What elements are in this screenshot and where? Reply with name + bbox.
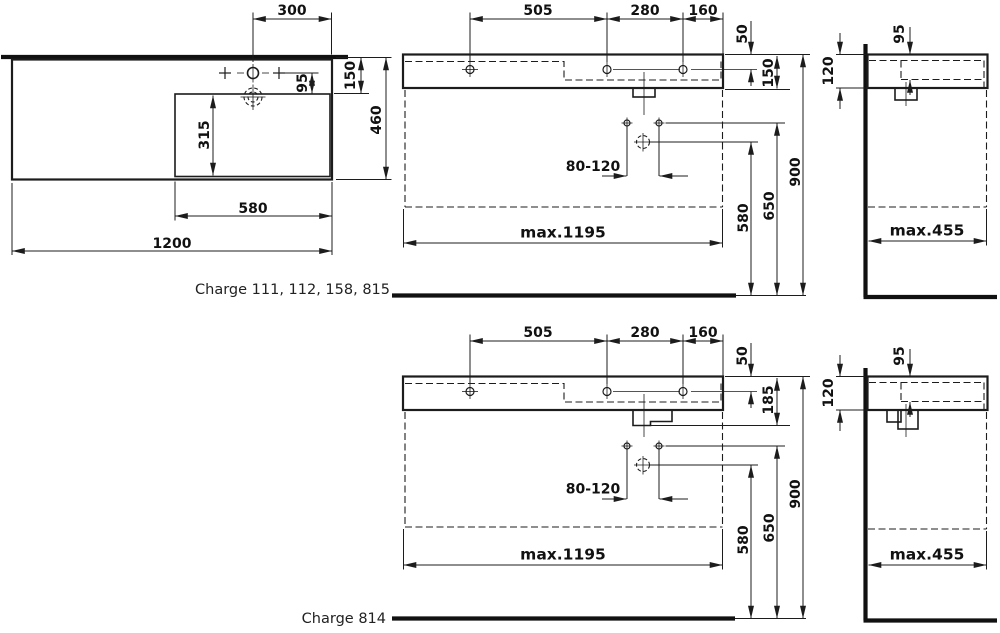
fixing-holes [622, 441, 665, 475]
dim-rim-height: 900 [788, 479, 804, 508]
dim-max-width: max.1195 [520, 546, 606, 564]
dim-body-height-side: 120 [821, 378, 837, 407]
basin-outline-plan [12, 60, 332, 180]
dim-rim-to-bowl: 150 [343, 61, 359, 90]
dim-fixing-height: 650 [762, 513, 778, 542]
side-elevation-top: 95 120 max.455 [821, 24, 997, 297]
dim-fixing-span: 80-120 [566, 159, 621, 175]
basin-outline-side [868, 377, 988, 411]
drawing-canvas: 300 150 95 460 315 580 1200 [0, 0, 1000, 633]
dim-rim-to-holes: 50 [735, 24, 751, 44]
caption-top: Charge 111, 112, 158, 815 [195, 282, 806, 298]
dim-bowl-inner-depth: 315 [197, 120, 213, 149]
dim-span-left: 505 [523, 325, 552, 341]
dim-fixing-span: 80-120 [566, 482, 621, 498]
dim-span-left: 505 [523, 3, 552, 19]
front-elevation-bottom: 505 280 160 50 185 80-120 580 650 900 ma… [403, 325, 810, 619]
dim-bowl-depth: 95 [892, 346, 908, 365]
dim-body-height-side: 120 [821, 56, 837, 85]
installation-envelope [405, 90, 723, 207]
dim-drain-height: 580 [736, 203, 752, 232]
dim-span-right: 160 [688, 325, 717, 341]
side-top-dimension-lines [836, 27, 987, 246]
drain-outlet-icon [634, 133, 653, 152]
dim-max-depth: max.455 [890, 222, 965, 240]
plan-view: 300 150 95 460 315 580 1200 [1, 3, 392, 255]
basin-outline-front [403, 377, 723, 411]
dim-faucet-offset: 300 [277, 3, 306, 19]
faucet-holes-front [462, 384, 757, 399]
bowl-hidden-line-side [869, 383, 984, 411]
faucet-holes-front [462, 62, 757, 77]
model-label-top: Charge 111, 112, 158, 815 [195, 282, 390, 298]
basin-outline-side [868, 55, 988, 89]
dim-total-width: 1200 [153, 236, 192, 252]
dim-body-height: 185 [761, 385, 777, 414]
bowl-hidden-line [405, 62, 721, 81]
model-label-bottom: Charge 814 [302, 611, 386, 627]
drain-outlet-icon [634, 456, 653, 475]
alt-faucet-position-right-icon [273, 67, 285, 79]
siphon-outline-icon [887, 410, 918, 429]
fixing-holes [622, 118, 665, 152]
dim-drain-height: 580 [736, 525, 752, 554]
side-elevation-bottom: 95 120 max.455 [821, 346, 997, 620]
technical-drawing-sheet: 300 150 95 460 315 580 1200 [0, 0, 1000, 633]
dim-max-width: max.1195 [520, 224, 606, 242]
dim-body-height: 150 [761, 58, 777, 87]
dim-fixing-height: 650 [762, 191, 778, 220]
dim-max-depth: max.455 [890, 546, 965, 564]
siphon-outline-icon [633, 410, 672, 426]
front-elevation-top: 505 280 160 50 150 80-120 580 650 900 ma… [403, 3, 810, 296]
basin-outline-front [403, 55, 723, 89]
dim-rim-height: 900 [788, 157, 804, 186]
bowl-hidden-line-side [869, 61, 984, 89]
installation-envelope [405, 412, 723, 527]
alt-faucet-position-left-icon [219, 67, 231, 79]
dim-span-mid: 280 [630, 325, 659, 341]
dim-bowl-width: 580 [238, 201, 267, 217]
dim-rim-to-holes: 50 [735, 346, 751, 366]
dim-faucet-to-bowl: 95 [295, 73, 311, 92]
dim-total-depth: 460 [369, 105, 385, 134]
caption-bottom: Charge 814 [302, 611, 806, 627]
faucet-hole-icon [237, 64, 269, 83]
dim-span-mid: 280 [630, 3, 659, 19]
dim-span-right: 160 [688, 3, 717, 19]
drain-hole-icon [241, 85, 266, 111]
bowl-hidden-line [405, 384, 721, 403]
dim-bowl-depth: 95 [892, 24, 908, 43]
